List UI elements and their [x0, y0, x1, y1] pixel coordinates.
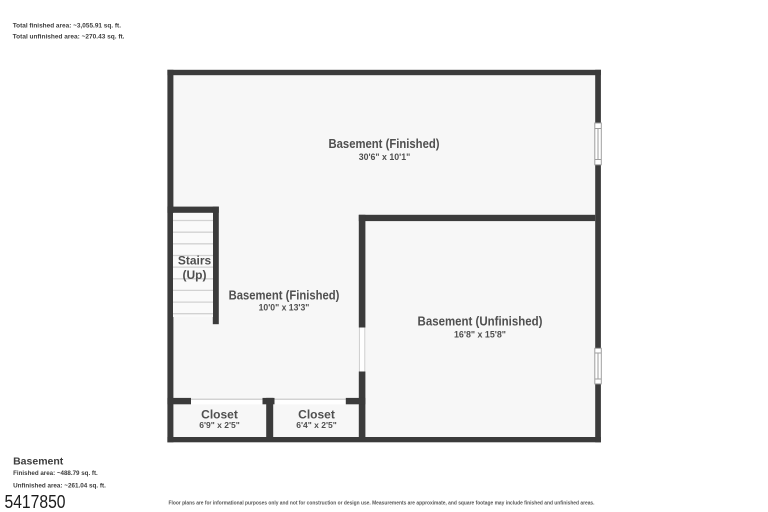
svg-text:16'8" x 15'8": 16'8" x 15'8": [454, 330, 506, 341]
svg-text:6'9" x 2'5": 6'9" x 2'5": [199, 420, 239, 430]
svg-text:Unfinished area: ~261.04 sq. f: Unfinished area: ~261.04 sq. ft.: [13, 482, 106, 489]
svg-text:Floor plans are for informatio: Floor plans are for informational purpos…: [169, 501, 596, 507]
svg-text:Finished area: ~488.79 sq. ft.: Finished area: ~488.79 sq. ft.: [13, 470, 98, 477]
svg-text:10'0" x 13'3": 10'0" x 13'3": [259, 303, 310, 314]
svg-text:Basement (Finished): Basement (Finished): [329, 137, 440, 151]
svg-text:30'6" x 10'1": 30'6" x 10'1": [359, 152, 411, 163]
svg-text:Stairs: Stairs: [178, 254, 212, 268]
svg-text:Total finished area: ~3,055.91: Total finished area: ~3,055.91 sq. ft.: [13, 23, 121, 30]
svg-text:6'4" x 2'5": 6'4" x 2'5": [296, 420, 336, 430]
svg-text:Total unfinished area: ~270.43: Total unfinished area: ~270.43 sq. ft.: [13, 34, 125, 41]
svg-text:Basement (Finished): Basement (Finished): [229, 289, 340, 303]
svg-text:(Up): (Up): [183, 268, 207, 282]
svg-text:5417850: 5417850: [5, 491, 66, 512]
svg-text:Basement: Basement: [13, 456, 64, 468]
svg-text:Basement (Unfinished): Basement (Unfinished): [418, 314, 543, 328]
